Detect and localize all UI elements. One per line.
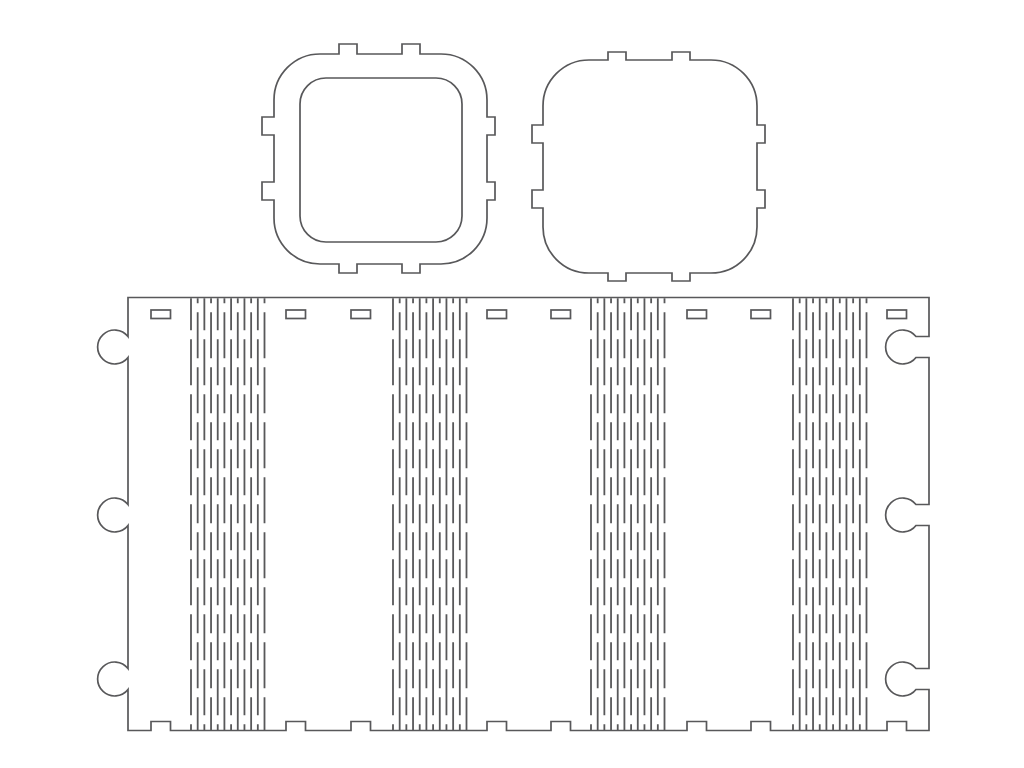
frame-ring-hole (300, 78, 462, 242)
slot-cutout (751, 310, 771, 319)
laser-cut-template-drawing (0, 0, 1024, 768)
slot-cutout (487, 310, 507, 319)
drawing-canvas (0, 0, 1024, 768)
slot-cutout (887, 310, 907, 319)
living-hinge-bands (191, 298, 867, 730)
wrap-panel-outline (98, 298, 929, 731)
slot-cutout (351, 310, 371, 319)
slot-cutout (286, 310, 306, 319)
slot-cutout (687, 310, 707, 319)
lid-outline (532, 52, 765, 281)
slot-cutout (551, 310, 571, 319)
slot-cutout (151, 310, 171, 319)
